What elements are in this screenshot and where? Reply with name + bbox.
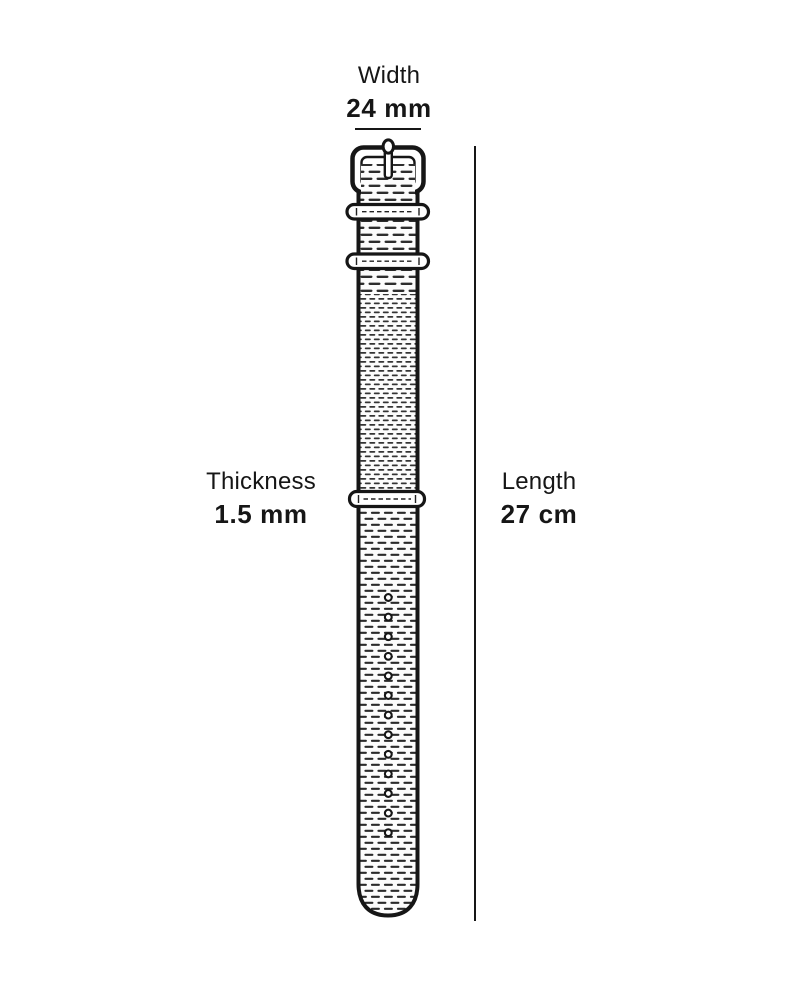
- width-value: 24 mm: [346, 93, 431, 123]
- strap-hole: [385, 810, 392, 817]
- strap-hole: [385, 771, 392, 778]
- keeper-top-2: [347, 254, 429, 269]
- thickness-label: Thickness: [206, 468, 316, 496]
- strap-hole: [385, 829, 392, 836]
- buckle: [353, 140, 424, 195]
- strap-hole: [385, 712, 392, 719]
- length-value: 27 cm: [501, 499, 578, 529]
- strap-body: [354, 186, 422, 918]
- thickness-value: 1.5 mm: [214, 499, 307, 529]
- length-dimension: Length 27 cm: [439, 468, 639, 529]
- strap-hole: [385, 653, 392, 660]
- length-label: Length: [502, 468, 577, 496]
- strap-hole: [385, 692, 392, 699]
- strap-hole: [385, 594, 392, 601]
- dimension-diagram: Width 24 mm Thickness 1.5 mm Length 27 c…: [0, 0, 800, 1000]
- strap-hole: [385, 731, 392, 738]
- strap-hole: [385, 751, 392, 758]
- strap-hole: [385, 673, 392, 680]
- strap-hole: [385, 614, 392, 621]
- length-dimension-line: [474, 146, 476, 921]
- strap-illustration: [330, 130, 450, 930]
- strap-hole: [385, 633, 392, 640]
- keeper-middle: [350, 492, 425, 507]
- width-label: Width: [358, 62, 420, 90]
- keeper-top-1: [347, 205, 429, 220]
- strap-hole: [385, 790, 392, 797]
- buckle-prong-knob: [383, 140, 393, 153]
- width-dimension: Width 24 mm: [289, 62, 489, 123]
